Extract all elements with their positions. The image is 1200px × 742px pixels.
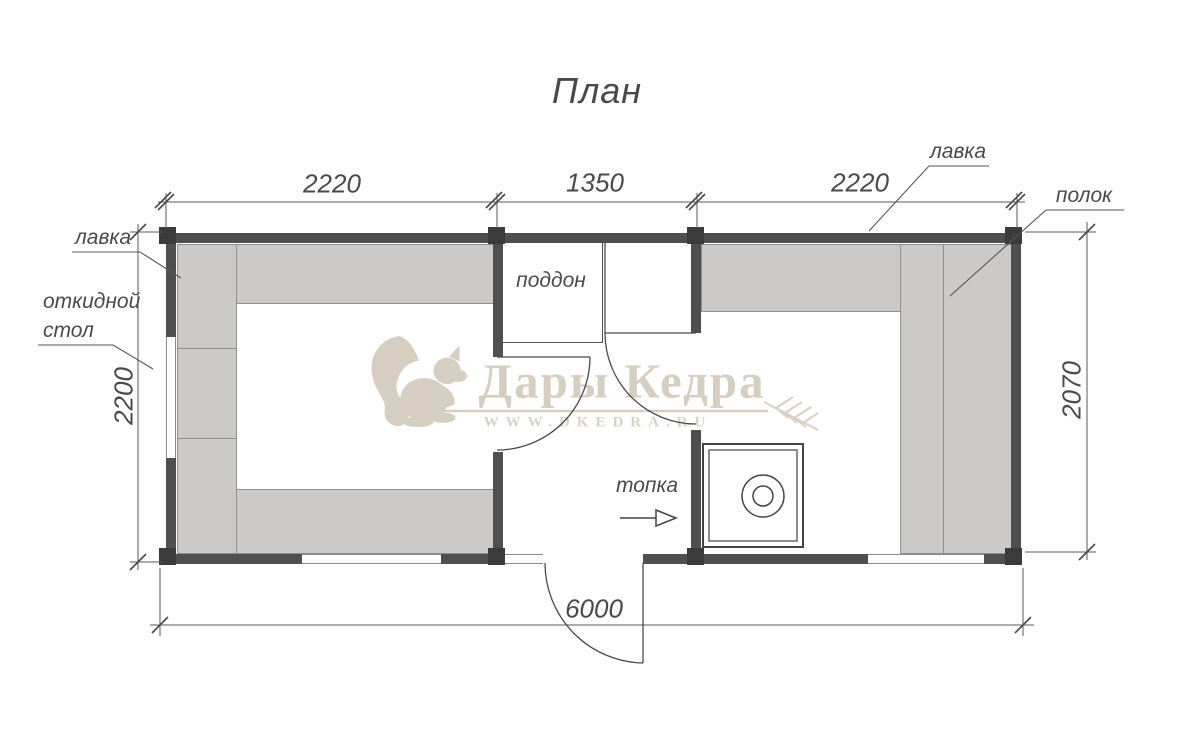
dim-right-side: 2070 xyxy=(1057,361,1088,419)
window-bottom-left-room xyxy=(302,554,441,564)
stove xyxy=(703,444,803,547)
label-shower-tray: поддон xyxy=(516,269,586,293)
squirrel-logo-icon xyxy=(371,336,466,427)
sauna-top-bench xyxy=(701,244,901,312)
watermark-website: WWW.DKEDRA.RU xyxy=(484,415,713,432)
post-bottom-partition-1 xyxy=(488,548,505,565)
post-bottom-right xyxy=(1005,548,1022,565)
wall-right xyxy=(1011,233,1021,564)
post-bottom-left xyxy=(159,548,176,565)
dim-left-side: 2200 xyxy=(109,367,140,425)
dim-bottom-total: 6000 xyxy=(565,594,623,625)
left-room-bottom-bench xyxy=(236,489,494,554)
post-top-partition-1 xyxy=(488,227,505,244)
dim-top-right: 2220 xyxy=(831,168,889,199)
dim-top-middle: 1350 xyxy=(566,168,624,199)
label-folding-table-line2: стол xyxy=(43,319,94,343)
sauna-shelf-tier-1 xyxy=(900,244,944,554)
post-top-left xyxy=(159,227,176,244)
dim-top-left: 2220 xyxy=(303,169,361,200)
wall-partition-2-lower xyxy=(691,430,701,564)
leader-bench-left xyxy=(72,252,181,278)
label-shelf: полок xyxy=(1056,184,1112,208)
wheat-branch-icon xyxy=(764,397,818,430)
floor-plan: Дары Кедра WWW.DKEDRA.RU План xyxy=(0,0,1200,742)
label-folding-table-line1: откидной xyxy=(43,290,140,314)
window-left-wall xyxy=(166,337,176,458)
plan-title: План xyxy=(552,70,642,112)
left-room-side-bench-top xyxy=(177,244,237,349)
label-bench-right: лавка xyxy=(930,140,986,164)
post-top-partition-2 xyxy=(687,227,704,244)
sauna-shelf-tier-2 xyxy=(943,244,1012,554)
leader-folding-table xyxy=(38,345,153,369)
stove-circle-inner xyxy=(753,486,773,506)
watermark-brand: Дары Кедра xyxy=(478,353,765,410)
window-bottom-right-room xyxy=(868,554,984,564)
firebox-arrow-icon xyxy=(620,510,676,526)
wall-partition-2-upper xyxy=(691,233,701,333)
left-room-top-bench xyxy=(236,244,494,304)
wall-top xyxy=(166,233,1021,243)
stove-circle-outer xyxy=(742,475,784,517)
entrance-side-panel xyxy=(505,554,543,564)
wall-partition-1-upper xyxy=(493,233,503,357)
entrance-door-opening xyxy=(543,554,643,564)
label-firebox: топка xyxy=(616,474,678,498)
post-bottom-partition-2 xyxy=(687,548,704,565)
left-room-side-bench-middle xyxy=(177,348,237,439)
label-bench-left: лавка xyxy=(75,226,131,250)
post-top-right xyxy=(1005,227,1022,244)
left-room-side-bench-bottom xyxy=(177,438,237,554)
